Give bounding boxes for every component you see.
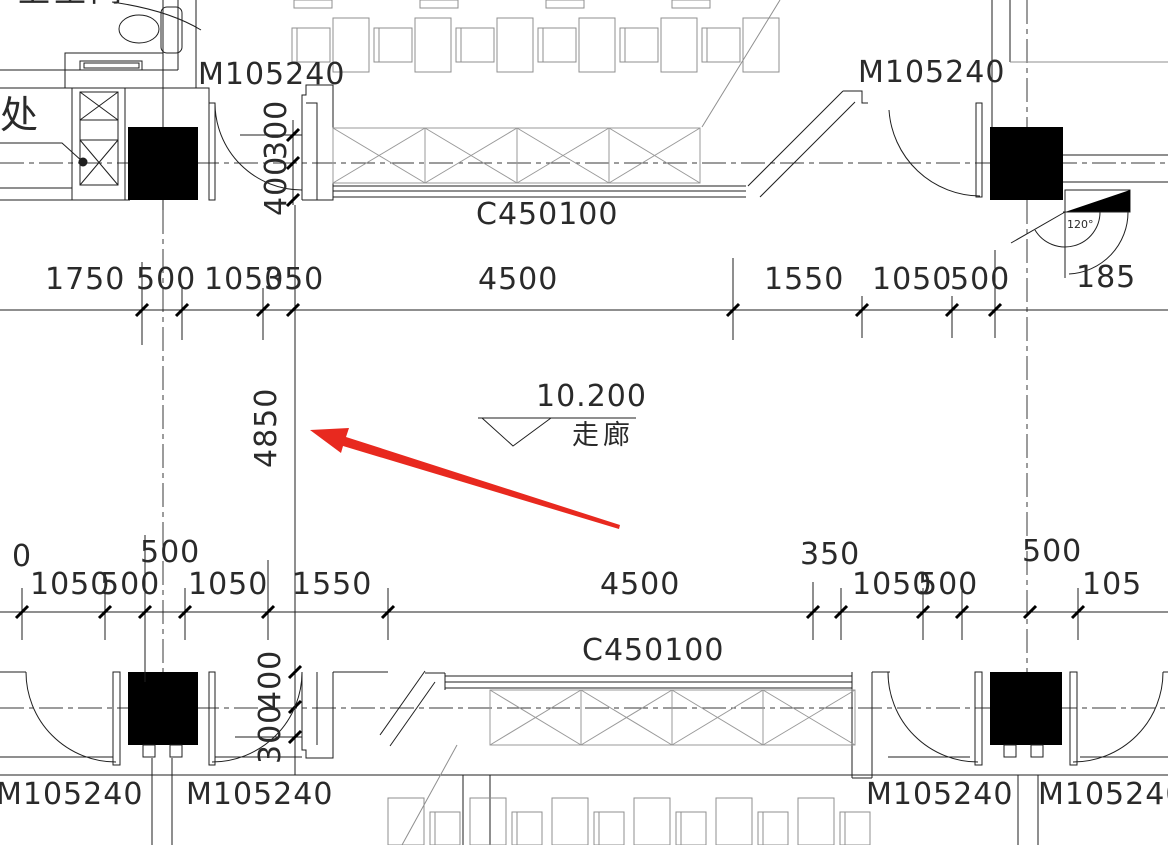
dim-label: 105: [1082, 570, 1142, 600]
leader-line: [702, 0, 780, 127]
top-right-door: [889, 103, 982, 197]
door-label-bottom-3: M105240: [866, 780, 1013, 810]
door-label-bottom-2: M105240: [186, 780, 333, 810]
toilet-bowl: [119, 15, 159, 43]
floor-plan: 卫生间 处 M105240 M105240 C450100 1750 500 1…: [0, 0, 1168, 845]
dim-label-vertical: 300: [262, 100, 292, 160]
door-arc: [1073, 672, 1163, 762]
dim-label: 4500: [600, 570, 680, 600]
room-label-toilet: 卫生间: [18, 0, 126, 6]
wall-centerlines: [0, 0, 1168, 708]
door-angle-label: 120°: [1067, 219, 1094, 230]
dim-label: 500: [140, 538, 200, 568]
door-leaf: [209, 103, 215, 200]
elevation-room-name: 走廊: [572, 422, 634, 449]
dim-label: 350: [800, 540, 860, 570]
door-leaf: [1011, 212, 1065, 243]
elevation-value: 10.200: [536, 382, 647, 412]
dim-label: 500: [950, 265, 1010, 295]
door-arc: [889, 110, 980, 196]
dim-label: 1050: [188, 570, 268, 600]
dim-label-vertical: 400: [262, 156, 292, 216]
top-window-sill: [333, 91, 868, 197]
door-leaf: [975, 672, 982, 765]
top-furniture: [292, 0, 1168, 127]
door-label-top-right: M105240: [858, 58, 1005, 88]
dim-label-vertical: 300: [256, 704, 286, 764]
door-arc: [26, 672, 116, 762]
dim-label: 1050: [872, 265, 952, 295]
bottom-furniture: [388, 745, 870, 845]
dim-label: 1550: [292, 570, 372, 600]
window-label-bottom: C450100: [582, 636, 724, 666]
dim-label: 1050: [30, 570, 110, 600]
window-label-top: C450100: [476, 200, 618, 230]
bottom-window: [490, 690, 855, 745]
dim-label: 500: [100, 570, 160, 600]
dim-label-vertical: 400: [256, 650, 286, 710]
room-label-chu: 处: [0, 96, 39, 134]
dim-label: 500: [136, 265, 196, 295]
door-threshold-fill: [1065, 190, 1130, 212]
door-leaf: [113, 672, 120, 765]
door-arc: [888, 672, 978, 762]
dim-label: 350: [264, 265, 324, 295]
dim-label: 4500: [478, 265, 558, 295]
dim-label: 500: [918, 570, 978, 600]
toilet-room: [0, 0, 201, 88]
dim-label: 1750: [45, 265, 125, 295]
dim-label-corridor-width: 4850: [252, 388, 282, 468]
door-label-top-left: M105240: [198, 60, 345, 90]
dim-label: 1550: [764, 265, 844, 295]
top-window: [333, 128, 700, 183]
door-label-bottom-1: M105240: [0, 780, 143, 810]
door-leaf: [209, 672, 215, 765]
dim-label: 500: [1022, 537, 1082, 567]
door-leaf: [1070, 672, 1077, 765]
dim-label: 185: [1076, 263, 1136, 293]
door-leaf: [976, 103, 982, 197]
elevation-triangle: [482, 418, 551, 446]
door-label-bottom-4: M105240: [1038, 780, 1168, 810]
